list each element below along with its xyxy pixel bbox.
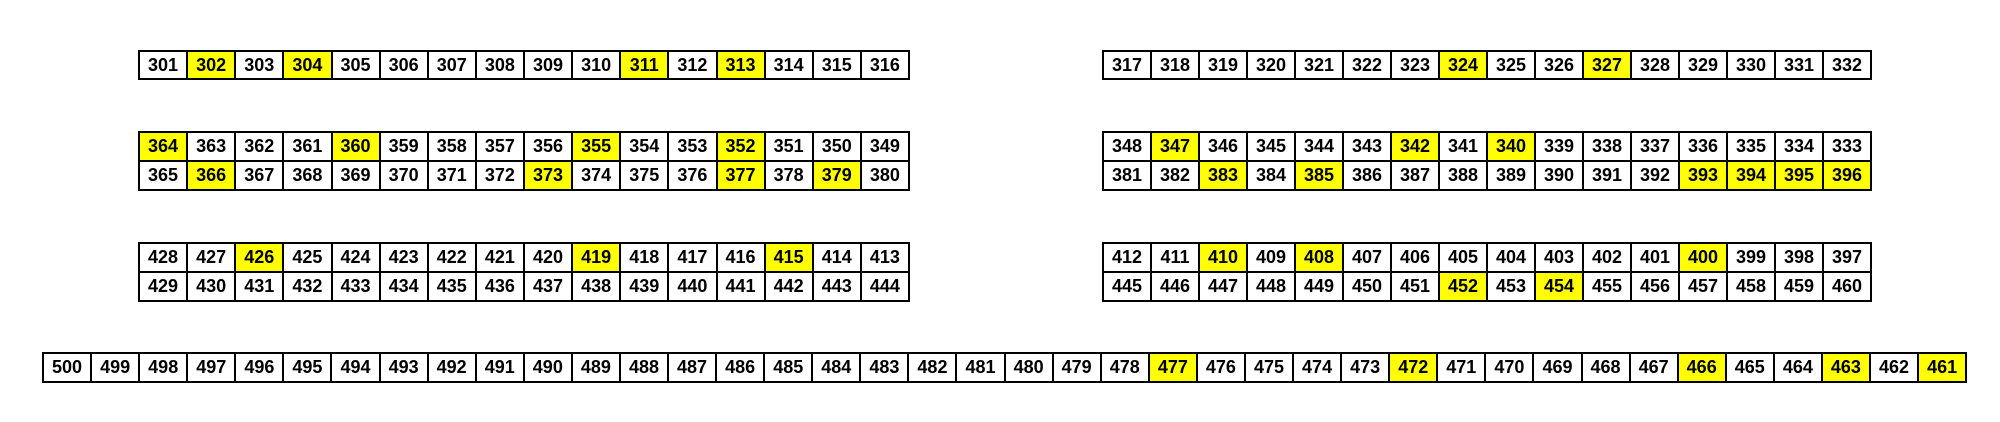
number-cell: 459 <box>1774 273 1822 300</box>
number-cell: 329 <box>1678 52 1726 78</box>
number-cell: 306 <box>379 52 427 78</box>
number-cell-highlighted: 347 <box>1150 133 1198 160</box>
number-row: 3813823833843853863873883893903913923933… <box>1104 160 1870 189</box>
number-cell-highlighted: 340 <box>1486 133 1534 160</box>
number-cell-highlighted: 385 <box>1294 162 1342 189</box>
number-cell: 357 <box>475 133 523 160</box>
number-cell-highlighted: 461 <box>1917 354 1965 381</box>
number-cell: 404 <box>1486 244 1534 271</box>
number-cell: 367 <box>234 162 282 189</box>
number-cell: 401 <box>1630 244 1678 271</box>
number-cell: 416 <box>716 244 764 271</box>
number-cell-highlighted: 342 <box>1390 133 1438 160</box>
number-cell: 309 <box>523 52 571 78</box>
second-band-right-block: 3483473463453443433423413403393383373363… <box>1102 131 1872 191</box>
number-cell: 319 <box>1198 52 1246 78</box>
number-cell: 356 <box>523 133 571 160</box>
number-cell-highlighted: 311 <box>619 52 667 78</box>
number-cell: 447 <box>1198 273 1246 300</box>
number-cell: 399 <box>1726 244 1774 271</box>
top-band-right-block: 3173183193203213223233243253263273283293… <box>1102 50 1872 80</box>
number-cell: 332 <box>1822 52 1870 78</box>
number-cell: 316 <box>860 52 908 78</box>
number-cell: 478 <box>1100 354 1148 381</box>
number-cell: 381 <box>1104 162 1150 189</box>
number-cell: 350 <box>812 133 860 160</box>
number-cell: 425 <box>282 244 330 271</box>
number-cell: 443 <box>812 273 860 300</box>
number-row: 4454464474484494504514524534544554564574… <box>1104 271 1870 300</box>
number-cell: 361 <box>282 133 330 160</box>
number-cell: 414 <box>812 244 860 271</box>
third-band-left-block: 4284274264254244234224214204194184174164… <box>138 242 910 302</box>
number-cell: 474 <box>1292 354 1340 381</box>
number-cell: 486 <box>715 354 763 381</box>
number-cell: 349 <box>860 133 908 160</box>
number-cell: 398 <box>1774 244 1822 271</box>
number-cell: 318 <box>1150 52 1198 78</box>
number-cell: 424 <box>331 244 379 271</box>
number-cell: 476 <box>1196 354 1244 381</box>
number-cell: 495 <box>282 354 330 381</box>
number-cell: 307 <box>427 52 475 78</box>
number-cell: 413 <box>860 244 908 271</box>
number-cell: 439 <box>619 273 667 300</box>
number-cell: 428 <box>140 244 186 271</box>
number-cell: 407 <box>1342 244 1390 271</box>
number-cell: 460 <box>1822 273 1870 300</box>
number-cell: 455 <box>1582 273 1630 300</box>
number-cell: 457 <box>1678 273 1726 300</box>
number-cell: 375 <box>619 162 667 189</box>
number-row: 3653663673683693703713723733743753763773… <box>140 160 908 189</box>
number-cell-highlighted: 394 <box>1726 162 1774 189</box>
number-cell-highlighted: 477 <box>1148 354 1196 381</box>
number-cell: 334 <box>1774 133 1822 160</box>
number-cell: 376 <box>667 162 715 189</box>
number-cell: 436 <box>475 273 523 300</box>
number-cell: 301 <box>140 52 186 78</box>
number-cell: 458 <box>1726 273 1774 300</box>
number-cell: 362 <box>234 133 282 160</box>
number-cell: 442 <box>764 273 812 300</box>
bottom-band-block: 5004994984974964954944934924914904894884… <box>42 352 1967 383</box>
number-cell: 354 <box>619 133 667 160</box>
number-cell: 433 <box>331 273 379 300</box>
number-cell: 310 <box>571 52 619 78</box>
number-cell: 363 <box>186 133 234 160</box>
number-cell: 456 <box>1630 273 1678 300</box>
number-cell: 497 <box>186 354 234 381</box>
number-cell: 333 <box>1822 133 1870 160</box>
number-cell: 409 <box>1246 244 1294 271</box>
number-cell-highlighted: 355 <box>571 133 619 160</box>
number-cell: 441 <box>716 273 764 300</box>
number-cell: 471 <box>1436 354 1484 381</box>
number-cell: 434 <box>379 273 427 300</box>
number-cell-highlighted: 379 <box>812 162 860 189</box>
number-cell: 391 <box>1582 162 1630 189</box>
number-cell: 303 <box>234 52 282 78</box>
number-cell: 335 <box>1726 133 1774 160</box>
number-cell: 453 <box>1486 273 1534 300</box>
number-cell: 487 <box>667 354 715 381</box>
number-cell: 382 <box>1150 162 1198 189</box>
number-cell-highlighted: 396 <box>1822 162 1870 189</box>
number-cell-highlighted: 452 <box>1438 273 1486 300</box>
number-cell: 351 <box>764 133 812 160</box>
number-cell: 489 <box>571 354 619 381</box>
number-cell-highlighted: 415 <box>764 244 812 271</box>
number-row: 3643633623613603593583573563553543533523… <box>140 133 908 160</box>
number-cell: 344 <box>1294 133 1342 160</box>
number-cell: 437 <box>523 273 571 300</box>
number-cell: 331 <box>1774 52 1822 78</box>
number-cell: 448 <box>1246 273 1294 300</box>
number-cell: 498 <box>138 354 186 381</box>
number-cell: 308 <box>475 52 523 78</box>
number-cell-highlighted: 410 <box>1198 244 1246 271</box>
number-row: 4124114104094084074064054044034024014003… <box>1104 244 1870 271</box>
number-row: 3173183193203213223233243253263273283293… <box>1104 52 1870 78</box>
number-cell: 320 <box>1246 52 1294 78</box>
number-cell: 321 <box>1294 52 1342 78</box>
number-cell: 445 <box>1104 273 1150 300</box>
number-cell: 378 <box>764 162 812 189</box>
number-cell-highlighted: 463 <box>1821 354 1869 381</box>
number-cell-highlighted: 366 <box>186 162 234 189</box>
number-cell-highlighted: 313 <box>716 52 764 78</box>
number-cell: 464 <box>1773 354 1821 381</box>
number-cell-highlighted: 352 <box>716 133 764 160</box>
number-cell: 411 <box>1150 244 1198 271</box>
number-cell: 336 <box>1678 133 1726 160</box>
number-cell: 388 <box>1438 162 1486 189</box>
number-cell: 484 <box>811 354 859 381</box>
number-row: 3013023033043053063073083093103113123133… <box>140 52 908 78</box>
number-cell: 450 <box>1342 273 1390 300</box>
number-cell: 440 <box>667 273 715 300</box>
number-cell: 322 <box>1342 52 1390 78</box>
number-cell: 368 <box>282 162 330 189</box>
number-cell-highlighted: 364 <box>140 133 186 160</box>
number-cell-highlighted: 408 <box>1294 244 1342 271</box>
number-cell: 312 <box>667 52 715 78</box>
number-cell: 435 <box>427 273 475 300</box>
number-cell: 485 <box>763 354 811 381</box>
number-cell: 482 <box>907 354 955 381</box>
number-cell-highlighted: 373 <box>523 162 571 189</box>
number-cell: 417 <box>667 244 715 271</box>
number-cell: 473 <box>1340 354 1388 381</box>
number-cell-highlighted: 324 <box>1438 52 1486 78</box>
number-cell: 465 <box>1725 354 1773 381</box>
number-cell: 418 <box>619 244 667 271</box>
number-cell: 358 <box>427 133 475 160</box>
number-cell-highlighted: 393 <box>1678 162 1726 189</box>
number-cell: 430 <box>186 273 234 300</box>
number-cell: 444 <box>860 273 908 300</box>
number-cell: 384 <box>1246 162 1294 189</box>
number-cell: 462 <box>1869 354 1917 381</box>
number-cell: 323 <box>1390 52 1438 78</box>
number-cell: 403 <box>1534 244 1582 271</box>
number-cell: 326 <box>1534 52 1582 78</box>
number-cell: 488 <box>619 354 667 381</box>
number-cell: 469 <box>1532 354 1580 381</box>
number-cell: 389 <box>1486 162 1534 189</box>
number-cell: 475 <box>1244 354 1292 381</box>
number-cell: 446 <box>1150 273 1198 300</box>
number-cell: 330 <box>1726 52 1774 78</box>
number-cell: 359 <box>379 133 427 160</box>
number-cell-highlighted: 304 <box>282 52 330 78</box>
number-row: 4294304314324334344354364374384394404414… <box>140 271 908 300</box>
number-cell: 317 <box>1104 52 1150 78</box>
number-cell: 491 <box>475 354 523 381</box>
number-cell: 480 <box>1004 354 1052 381</box>
number-cell: 470 <box>1484 354 1532 381</box>
number-cell: 493 <box>379 354 427 381</box>
number-cell-highlighted: 419 <box>571 244 619 271</box>
number-cell-highlighted: 360 <box>331 133 379 160</box>
number-row: 5004994984974964954944934924914904894884… <box>44 354 1965 381</box>
number-cell-highlighted: 466 <box>1677 354 1725 381</box>
number-cell: 479 <box>1052 354 1100 381</box>
number-cell: 328 <box>1630 52 1678 78</box>
number-cell: 380 <box>860 162 908 189</box>
number-cell-highlighted: 426 <box>234 244 282 271</box>
number-cell: 338 <box>1582 133 1630 160</box>
number-cell: 345 <box>1246 133 1294 160</box>
number-cell: 429 <box>140 273 186 300</box>
number-cell: 427 <box>186 244 234 271</box>
number-cell: 422 <box>427 244 475 271</box>
number-cell: 402 <box>1582 244 1630 271</box>
number-cell: 348 <box>1104 133 1150 160</box>
number-cell: 496 <box>234 354 282 381</box>
number-cell-highlighted: 377 <box>716 162 764 189</box>
number-cell: 500 <box>44 354 90 381</box>
number-cell: 365 <box>140 162 186 189</box>
number-cell: 449 <box>1294 273 1342 300</box>
number-cell: 432 <box>282 273 330 300</box>
number-cell-highlighted: 472 <box>1388 354 1436 381</box>
number-cell: 483 <box>859 354 907 381</box>
number-cell: 420 <box>523 244 571 271</box>
number-cell: 305 <box>331 52 379 78</box>
number-cell: 392 <box>1630 162 1678 189</box>
number-cell-highlighted: 454 <box>1534 273 1582 300</box>
number-cell: 492 <box>427 354 475 381</box>
number-cell-highlighted: 302 <box>186 52 234 78</box>
number-cell: 315 <box>812 52 860 78</box>
number-cell: 343 <box>1342 133 1390 160</box>
number-cell: 481 <box>955 354 1003 381</box>
number-cell-highlighted: 383 <box>1198 162 1246 189</box>
number-row: 3483473463453443433423413403393383373363… <box>1104 133 1870 160</box>
number-cell: 438 <box>571 273 619 300</box>
number-cell: 372 <box>475 162 523 189</box>
number-cell: 346 <box>1198 133 1246 160</box>
number-cell: 451 <box>1390 273 1438 300</box>
number-cell: 339 <box>1534 133 1582 160</box>
number-cell: 353 <box>667 133 715 160</box>
number-cell: 421 <box>475 244 523 271</box>
number-cell: 431 <box>234 273 282 300</box>
number-cell: 370 <box>379 162 427 189</box>
number-cell: 386 <box>1342 162 1390 189</box>
number-cell: 467 <box>1629 354 1677 381</box>
number-cell: 387 <box>1390 162 1438 189</box>
third-band-right-block: 4124114104094084074064054044034024014003… <box>1102 242 1872 302</box>
number-row: 4284274264254244234224214204194184174164… <box>140 244 908 271</box>
number-cell: 371 <box>427 162 475 189</box>
number-cell: 423 <box>379 244 427 271</box>
number-cell: 499 <box>90 354 138 381</box>
number-cell: 314 <box>764 52 812 78</box>
number-cell-highlighted: 395 <box>1774 162 1822 189</box>
second-band-left-block: 3643633623613603593583573563553543533523… <box>138 131 910 191</box>
number-cell: 390 <box>1534 162 1582 189</box>
top-band-left-block: 3013023033043053063073083093103113123133… <box>138 50 910 80</box>
number-cell: 405 <box>1438 244 1486 271</box>
number-chart-worksheet: 3013023033043053063073083093103113123133… <box>0 0 2000 422</box>
number-cell: 369 <box>331 162 379 189</box>
number-cell: 325 <box>1486 52 1534 78</box>
number-cell: 412 <box>1104 244 1150 271</box>
number-cell-highlighted: 400 <box>1678 244 1726 271</box>
number-cell: 494 <box>330 354 378 381</box>
number-cell: 397 <box>1822 244 1870 271</box>
number-cell: 468 <box>1581 354 1629 381</box>
number-cell: 406 <box>1390 244 1438 271</box>
number-cell: 337 <box>1630 133 1678 160</box>
number-cell: 341 <box>1438 133 1486 160</box>
number-cell: 490 <box>523 354 571 381</box>
number-cell-highlighted: 327 <box>1582 52 1630 78</box>
number-cell: 374 <box>571 162 619 189</box>
